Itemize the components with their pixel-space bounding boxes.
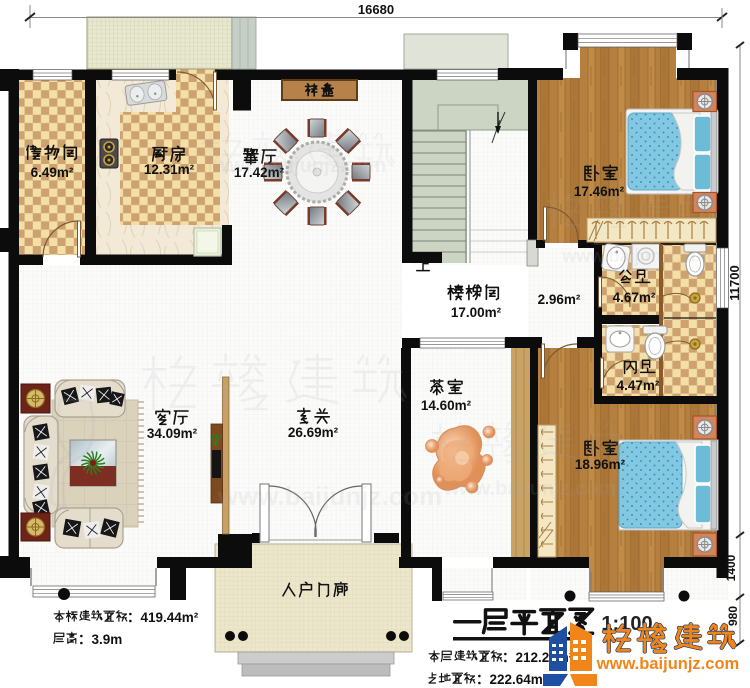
svg-text:：222.64m²: ：222.64m² bbox=[476, 672, 548, 687]
svg-text:980: 980 bbox=[726, 606, 740, 626]
svg-text:14.60m²: 14.60m² bbox=[421, 398, 472, 413]
svg-text:17.00m²: 17.00m² bbox=[451, 305, 502, 320]
svg-text:www.baijunjz.com: www.baijunjz.com bbox=[443, 478, 617, 500]
svg-text:：419.44m²: ：419.44m² bbox=[127, 610, 199, 625]
svg-text:4.47m²: 4.47m² bbox=[617, 378, 660, 393]
svg-text:www.baijunjz.com: www.baijunjz.com bbox=[217, 481, 442, 511]
svg-text:1400: 1400 bbox=[724, 554, 738, 581]
svg-text:www.baijunjz.com: www.baijunjz.com bbox=[596, 655, 739, 673]
svg-text:34.09m²: 34.09m² bbox=[147, 426, 198, 441]
svg-text:2.96m²: 2.96m² bbox=[538, 292, 581, 307]
svg-text:4.67m²: 4.67m² bbox=[613, 290, 656, 305]
svg-text:www.baijunjz.com: www.baijunjz.com bbox=[213, 155, 387, 177]
svg-text:12.31m²: 12.31m² bbox=[144, 162, 195, 177]
svg-text:18.96m²: 18.96m² bbox=[575, 457, 626, 472]
svg-text:6.49m²: 6.49m² bbox=[31, 165, 74, 180]
svg-text:26.69m²: 26.69m² bbox=[288, 425, 339, 440]
svg-text:www.baijunjz.com: www.baijunjz.com bbox=[561, 246, 717, 266]
svg-text:16680: 16680 bbox=[358, 2, 394, 17]
svg-text:：3.9m: ：3.9m bbox=[78, 632, 122, 647]
svg-text:11700: 11700 bbox=[727, 265, 742, 300]
